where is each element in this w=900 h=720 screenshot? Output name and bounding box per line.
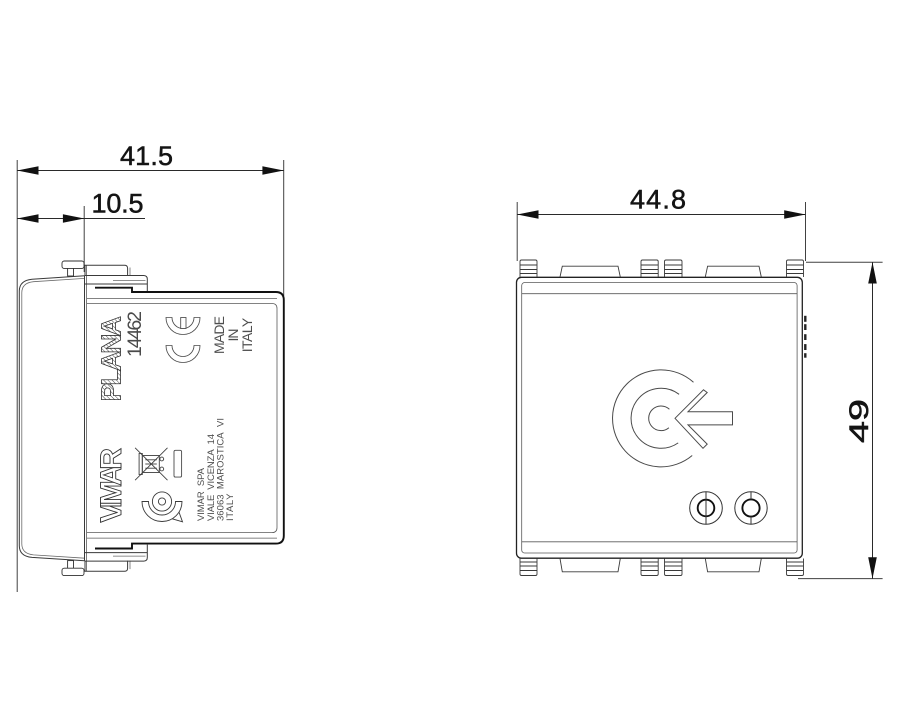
svg-text:ITALY: ITALY [225,493,236,521]
svg-text:41.5: 41.5 [120,141,173,171]
svg-text:ITALY: ITALY [239,317,255,352]
svg-text:10.5: 10.5 [92,189,144,219]
svg-text:VIMAR: VIMAR [95,448,128,523]
svg-text:44.8: 44.8 [630,185,686,215]
svg-text:14462: 14462 [124,311,146,357]
svg-text:PLANA: PLANA [95,316,126,402]
svg-text:49: 49 [844,399,874,443]
